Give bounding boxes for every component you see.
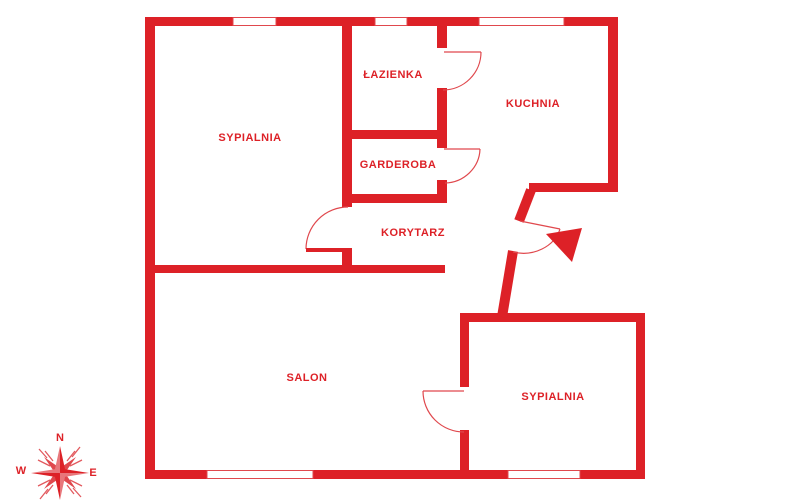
window-salon: [207, 471, 313, 479]
compass-rose-icon: [31, 446, 89, 500]
compass-label-west: W: [16, 465, 26, 477]
wall-salon-top: [145, 265, 445, 273]
compass-label-north: N: [56, 432, 64, 444]
wall-bedroom2-left-upper: [460, 313, 469, 387]
wall-entrance-diagonal-lower: [502, 251, 513, 317]
door-arc-bathroom: [443, 52, 481, 90]
wall-bedroom2-right: [636, 313, 645, 479]
floor-plan-canvas: SYPIALNIA ŁAZIENKA GARDEROBA KORYTARZ KU…: [0, 0, 790, 500]
door-leaf-entrance: [520, 221, 560, 229]
compass-label-east: E: [89, 467, 96, 479]
wall-bedroom2-top: [460, 313, 645, 322]
door-arc-wardrobe: [445, 149, 480, 183]
room-label-korytarz: KORYTARZ: [381, 227, 445, 239]
windows: [207, 18, 580, 479]
wall-wardrobe-bottom: [342, 194, 447, 203]
wall-entrance-diagonal-upper: [519, 190, 531, 221]
room-label-salon: SALON: [287, 372, 328, 384]
door-arc-bedroom2: [423, 391, 464, 432]
room-label-sypialnia-1: SYPIALNIA: [218, 132, 281, 144]
room-label-sypialnia-2: SYPIALNIA: [521, 391, 584, 403]
door-arc-bedroom1: [306, 207, 348, 249]
wall-kitchen-right: [608, 17, 618, 192]
wall-bedroom2-left-lower: [460, 430, 469, 479]
wall-kitchen-bottom: [529, 183, 618, 192]
wall-bedroom1-right: [342, 26, 352, 207]
wall-bathroom-kitchen-mid: [437, 88, 447, 148]
window-bathroom: [375, 18, 407, 26]
wall-bathroom-wardrobe-divider: [352, 130, 447, 139]
window-bedroom1: [233, 18, 276, 26]
window-bedroom2: [508, 471, 580, 479]
room-label-garderoba: GARDEROBA: [360, 159, 437, 171]
wall-bathroom-kitchen-upper: [437, 26, 447, 48]
compass-cardinal-points: [31, 446, 89, 500]
window-kitchen: [479, 18, 564, 26]
room-label-lazienka: ŁAZIENKA: [363, 69, 423, 81]
wall-left: [145, 17, 155, 479]
door-leaf-bedroom1: [306, 248, 351, 252]
room-label-kuchnia: KUCHNIA: [506, 98, 560, 110]
entrance-arrow-icon: [546, 228, 582, 262]
